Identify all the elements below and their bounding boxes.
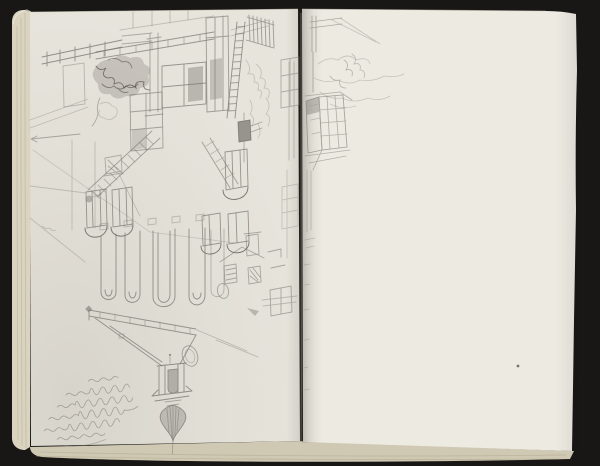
right-page-edge-shade [556,13,577,451]
page-edge-stack-left [12,10,31,450]
right-page [302,9,577,451]
sketchbook-scene [0,0,600,466]
ink-speck [517,365,520,368]
sketchbook-photo [0,0,600,466]
